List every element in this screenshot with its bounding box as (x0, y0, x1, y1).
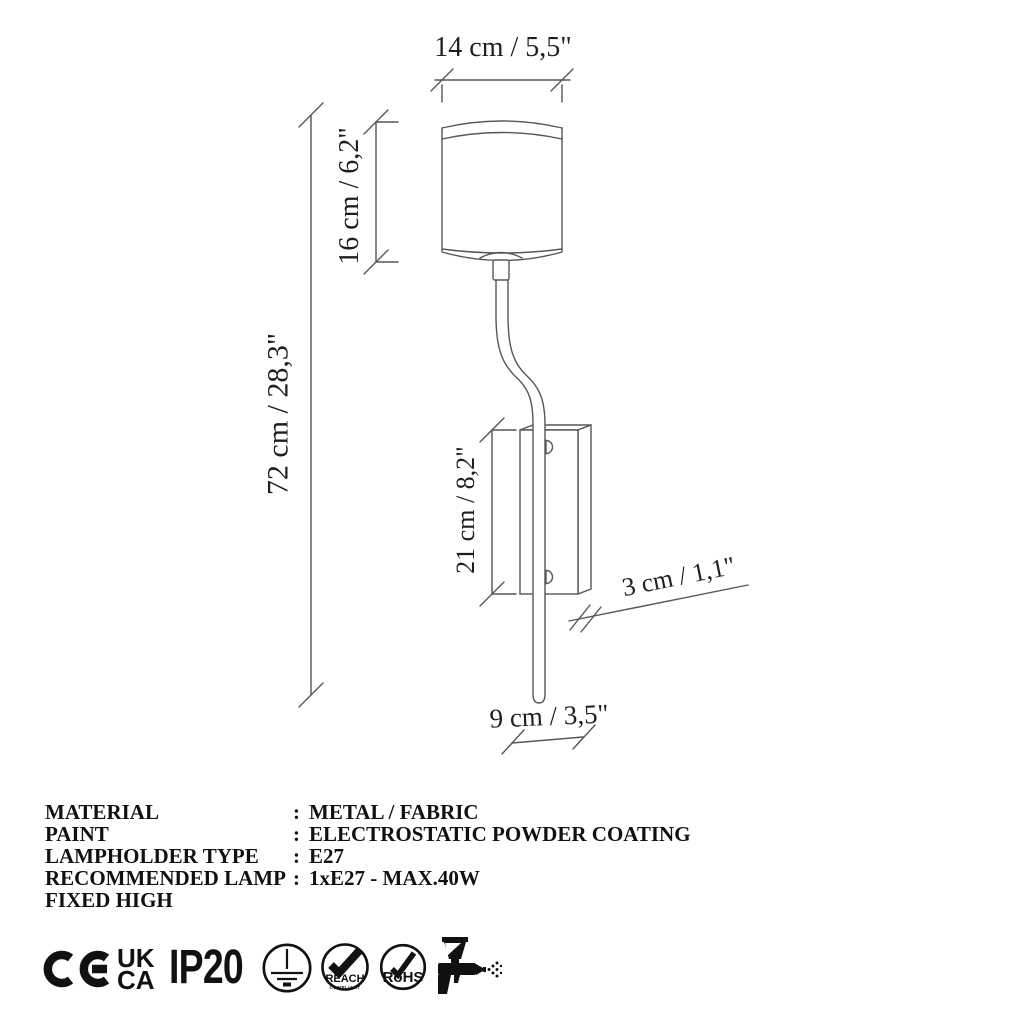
spec-table: MATERIAL : METAL / FABRIC PAINT : ELECTR… (45, 801, 691, 911)
lamp-shade (442, 121, 562, 261)
spec-row-fixed-high: FIXED HIGH (45, 889, 691, 911)
reach-label: REACH (320, 973, 370, 985)
spec-colon: : (293, 867, 309, 889)
rohs-badge: RoHS (379, 943, 427, 991)
spec-value: ELECTROSTATIC POWDER COATING (309, 823, 691, 845)
wall-bracket (520, 425, 591, 594)
spec-row-paint: PAINT : ELECTROSTATIC POWDER COATING (45, 823, 691, 845)
spec-row-lampholder: LAMPHOLDER TYPE : E27 (45, 845, 691, 867)
ukca-mark: UK CA (117, 947, 155, 991)
dimension-line-shade-height (364, 110, 398, 274)
reach-badge: REACH COMPLIANT (320, 942, 370, 992)
dimension-line-bracket-height (480, 418, 516, 606)
dimension-label-bottom-width: 9 cm / 3,5" (483, 698, 614, 732)
spray-gun-icon (436, 934, 502, 998)
dimension-line-shade-width (431, 69, 573, 102)
spec-row-material: MATERIAL : METAL / FABRIC (45, 801, 691, 823)
ip-rating-label: IP20 (169, 943, 243, 993)
ground-symbol-icon (261, 942, 313, 994)
ukca-bottom-label: CA (117, 969, 155, 991)
dimension-label-bracket-height: 21 cm / 8,2" (451, 434, 479, 586)
spec-value: 1xE27 - MAX.40W (309, 867, 480, 889)
spec-colon: : (293, 801, 309, 823)
product-dimension-sheet: 14 cm / 5,5" 16 cm / 6,2" 72 cm / 28,3" … (0, 0, 1024, 1024)
screw-top (546, 441, 553, 454)
spec-colon: : (293, 823, 309, 845)
spec-colon: : (293, 845, 309, 867)
dimension-label-shade-height: 16 cm / 6,2" (334, 116, 364, 276)
dimension-line-total-height (299, 103, 323, 707)
rohs-label: RoHS (379, 969, 427, 986)
spec-colon (293, 889, 309, 911)
spec-label: MATERIAL (45, 801, 293, 823)
screw-bottom (546, 571, 553, 584)
spec-label: PAINT (45, 823, 293, 845)
spec-row-recommended-lamp: RECOMMENDED LAMP : 1xE27 - MAX.40W (45, 867, 691, 889)
reach-compliant-label: COMPLIANT (320, 985, 370, 990)
spec-label: RECOMMENDED LAMP (45, 867, 293, 889)
spec-value: E27 (309, 845, 344, 867)
dimension-label-total-height: 72 cm / 28,3" (262, 317, 294, 512)
spec-label: FIXED HIGH (45, 889, 293, 911)
ce-mark-icon (42, 948, 118, 990)
stem-collar (493, 260, 509, 280)
dimension-label-shade-width: 14 cm / 5,5" (428, 32, 578, 64)
spec-value: METAL / FABRIC (309, 801, 479, 823)
spec-label: LAMPHOLDER TYPE (45, 845, 293, 867)
